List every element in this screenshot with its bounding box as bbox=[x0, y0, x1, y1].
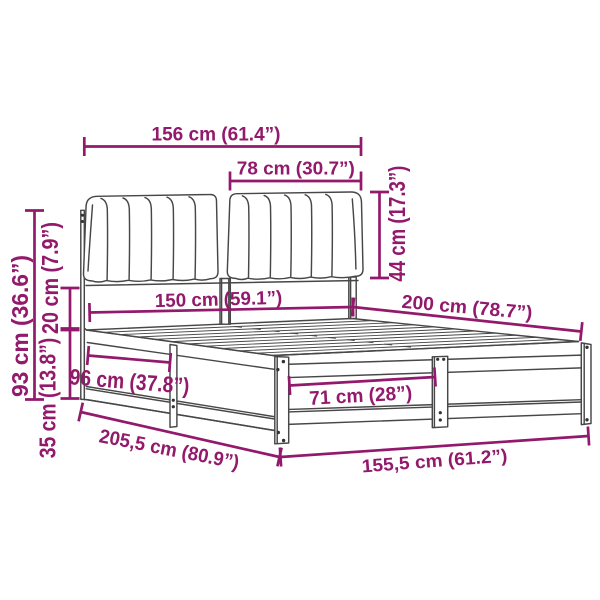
svg-text:93 cm (36.6”): 93 cm (36.6”) bbox=[7, 255, 33, 397]
svg-text:150 cm (59.1”): 150 cm (59.1”) bbox=[155, 288, 283, 312]
svg-text:20 cm (7.9”): 20 cm (7.9”) bbox=[37, 222, 63, 334]
svg-text:78 cm (30.7”): 78 cm (30.7”) bbox=[237, 158, 355, 179]
svg-text:35 cm (13.8”): 35 cm (13.8”) bbox=[35, 338, 61, 459]
svg-text:156 cm (61.4”): 156 cm (61.4”) bbox=[152, 123, 281, 145]
svg-text:44 cm (17.3”): 44 cm (17.3”) bbox=[384, 166, 410, 282]
